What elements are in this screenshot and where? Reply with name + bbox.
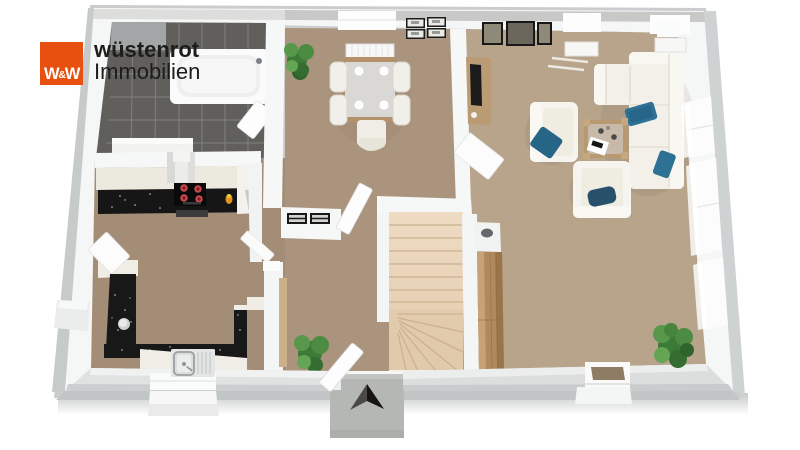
svg-text:Immobilien: Immobilien — [94, 59, 200, 84]
